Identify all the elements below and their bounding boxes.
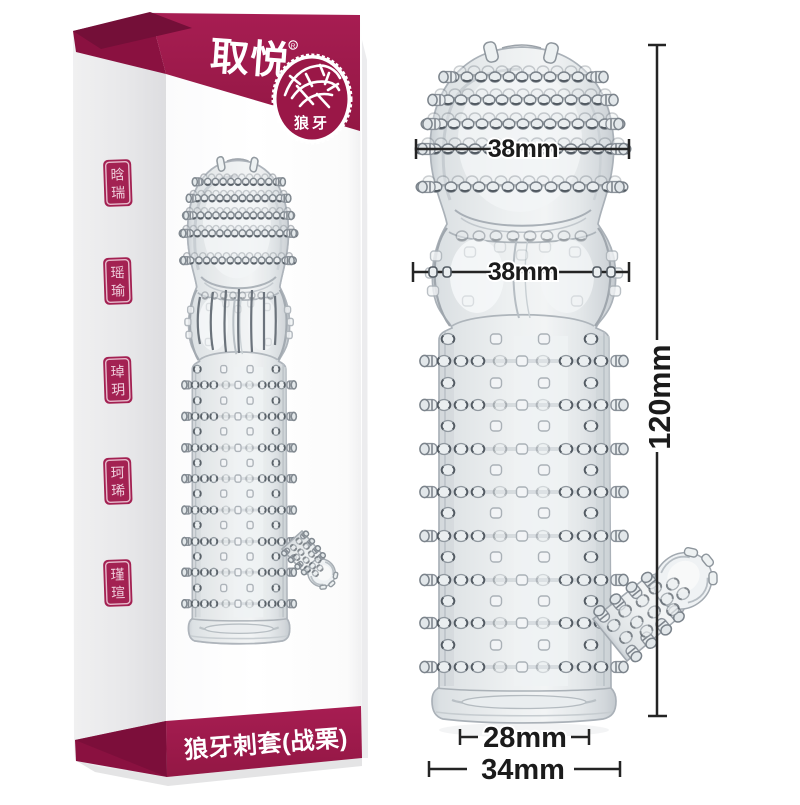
svg-text:琋: 琋 [111,482,126,498]
svg-text:瑜: 瑜 [111,282,126,298]
svg-text:瑞: 瑞 [111,184,126,200]
svg-text:28mm: 28mm [483,722,567,754]
svg-text:38mm: 38mm [488,135,558,163]
svg-text:120mm: 120mm [643,344,677,449]
svg-text:玥: 玥 [111,381,126,397]
svg-text:34mm: 34mm [481,754,565,786]
svg-text:瑶: 瑶 [110,264,125,280]
svg-text:狼牙: 狼牙 [294,114,330,132]
svg-text:瑾: 瑾 [110,566,125,582]
svg-text:珂: 珂 [110,464,125,480]
svg-text:琸: 琸 [110,363,125,379]
svg-text:38mm: 38mm [488,258,558,286]
svg-text:晗: 晗 [110,166,125,182]
svg-text:瑄: 瑄 [111,584,126,600]
svg-text:R: R [290,43,295,50]
